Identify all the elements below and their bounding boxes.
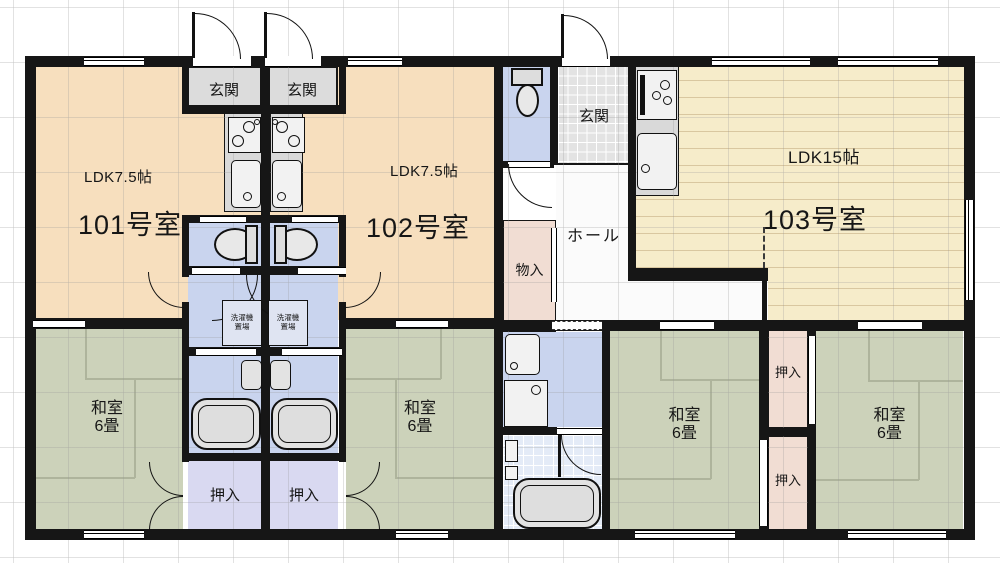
drain-icon — [510, 362, 518, 370]
label-oshiire-101: 押入 — [188, 458, 262, 530]
stove-handle — [640, 75, 645, 115]
drain-icon — [641, 164, 650, 173]
laundry-space-101: 洗濯機置場 — [222, 300, 262, 346]
floor-plan: 洗濯機置場 洗濯機置場 LDK7.5帖 101号室 LDK7.5帖 102号室 … — [0, 0, 1000, 563]
ldk-floor-103-main — [634, 64, 965, 272]
window-bottom-tatami102 — [396, 530, 448, 539]
sink-102 — [272, 160, 302, 208]
ldk101-tatami-opening — [33, 320, 85, 328]
drain-icon — [277, 192, 286, 201]
toilet102-door-opening — [298, 267, 346, 275]
burner-icon — [663, 96, 672, 105]
window-bottom-tatami101 — [84, 530, 144, 539]
entry-door-arc-101 — [195, 13, 241, 59]
hall-floor-vertical — [556, 163, 632, 332]
bathtub-102 — [271, 398, 338, 450]
washbasin-102 — [270, 360, 291, 390]
toilet-tank-102 — [274, 225, 287, 264]
toilet103-door-arc — [508, 164, 552, 208]
bath102-sliding-door — [282, 348, 342, 356]
label-hall: ホール — [567, 222, 621, 246]
wall-washroom103-bathroom — [494, 427, 557, 435]
bathtub-103 — [513, 478, 601, 529]
label-washitsu-103-left: 和室6畳 — [610, 330, 759, 520]
window-bottom-tatami103R — [848, 530, 946, 539]
washbasin-101 — [241, 360, 262, 390]
washer-drum-icon — [531, 385, 541, 395]
toilet102-upper-opening — [292, 216, 338, 223]
bathtub-101 — [191, 398, 261, 450]
wall-bath103-left-tatami — [602, 320, 610, 530]
entry-door-arc-103 — [564, 15, 608, 59]
burner-icon — [660, 80, 670, 90]
ldk-floor-103-lower — [768, 272, 965, 322]
label-ldk-103: LDK15帖 — [788, 143, 860, 168]
burner-icon — [288, 135, 300, 147]
bathtub-inner — [520, 485, 594, 522]
label-washitsu-101: 和室6畳 — [31, 328, 183, 508]
burner-icon — [652, 91, 661, 100]
window-top-103a — [712, 57, 810, 66]
label-washitsu-102: 和室6畳 — [346, 328, 494, 508]
sink-103 — [637, 133, 677, 190]
label-ldk-101: LDK7.5帖 — [84, 166, 153, 187]
toilet-tank-101 — [245, 225, 258, 264]
label-washitsu-103-right: 和室6畳 — [816, 330, 963, 520]
wall-entry103-kitchen — [628, 56, 636, 281]
wall-hall-ldk103-thin — [762, 281, 767, 322]
bath-fixture-103 — [505, 466, 518, 480]
laundry-label: 洗濯機置場 — [231, 314, 254, 331]
drain-icon — [243, 192, 252, 201]
window-top-101 — [84, 57, 144, 66]
window-top-103b — [838, 57, 938, 66]
toilet-bowl-103 — [516, 84, 539, 117]
window-top-102 — [348, 57, 402, 66]
wall-ldk103-hall — [628, 268, 768, 281]
label-room-103: 103号室 — [763, 198, 867, 237]
label-room-101: 101号室 — [78, 203, 182, 242]
burner-icon — [272, 119, 278, 125]
laundry-label: 洗濯機置場 — [277, 314, 300, 331]
toilet101-door-opening — [192, 267, 240, 275]
bathtub-inner — [278, 405, 331, 443]
label-genkan-103: 玄関 — [556, 95, 632, 135]
washroom103-opening — [552, 321, 602, 330]
wall-between-102-103 — [494, 56, 503, 540]
window-bottom-tatami103L — [635, 530, 735, 539]
bath101-sliding-door — [196, 348, 256, 356]
window-right-ldk103 — [965, 200, 974, 300]
ldk102-tatami-opening — [396, 320, 448, 328]
burner-icon — [254, 119, 260, 125]
label-genkan-101: 玄関 — [186, 66, 262, 112]
wall-closet103-divider — [759, 428, 816, 436]
label-oshiire-102: 押入 — [270, 458, 338, 530]
entry-door-arc-102 — [267, 13, 313, 59]
label-oshiire-103-upper: 押入 — [762, 360, 814, 382]
burner-icon — [232, 135, 244, 147]
label-monoire-103: 物入 — [503, 255, 556, 285]
label-ldk-102: LDK7.5帖 — [390, 160, 459, 181]
hall-tatami103L-opening — [660, 321, 714, 330]
bath103-door-gap — [557, 428, 602, 435]
washing-machine-103 — [504, 380, 548, 427]
ldk-tatami103R-opening — [858, 321, 922, 330]
laundry-space-102: 洗濯機置場 — [268, 300, 308, 346]
toilet101-upper-opening — [200, 216, 246, 223]
label-room-102: 102号室 — [366, 206, 470, 245]
label-oshiire-103-lower: 押入 — [762, 468, 814, 490]
bathtub-inner — [198, 405, 254, 443]
bath-fixture-103 — [505, 440, 518, 462]
label-genkan-102: 玄関 — [266, 66, 338, 112]
